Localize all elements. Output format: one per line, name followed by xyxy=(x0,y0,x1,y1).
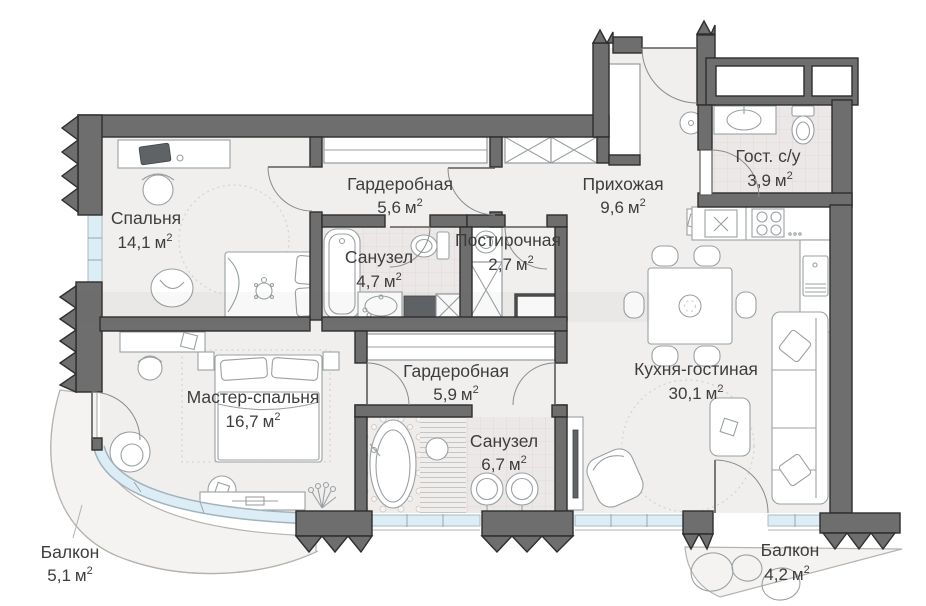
area-value: 3,9 xyxy=(747,171,771,190)
room-area: 6,7м2 xyxy=(481,454,526,474)
wardrobe2-rail xyxy=(367,334,555,360)
bedroom-desk xyxy=(118,140,230,168)
room-area: 9,6м2 xyxy=(600,197,645,217)
area-sup: 2 xyxy=(521,454,527,466)
area-value: 2,7 xyxy=(488,255,512,274)
area-sup: 2 xyxy=(473,384,479,396)
master-bed xyxy=(198,352,339,462)
wall-closet-stub xyxy=(609,155,640,165)
area-sup: 2 xyxy=(528,254,534,266)
bottom-window-2 xyxy=(575,515,683,526)
wall-bath1-north-b xyxy=(430,215,467,227)
area-sup: 2 xyxy=(787,170,793,182)
bathtub-2 xyxy=(370,420,416,508)
guest-wc-door-leaf xyxy=(700,150,712,195)
area-unit: м xyxy=(155,233,167,252)
wall-wardrobe1-right-a xyxy=(490,137,502,167)
wall-wardrobe2-east-a xyxy=(555,331,567,363)
floor-bathroom2-shower xyxy=(420,417,466,513)
wall-right-main xyxy=(830,205,852,513)
area-unit: м xyxy=(509,455,521,474)
area-sup: 2 xyxy=(804,564,810,576)
room-area: 5,6м2 xyxy=(377,197,422,217)
floor-plan: Спальня 14,1м2 Гардеробная 5,6м2 Прихожа… xyxy=(0,0,926,606)
wall-vestibule-left xyxy=(593,43,609,137)
guest-wc-toilet xyxy=(792,106,814,144)
hatch-entry-right xyxy=(697,21,715,34)
area-unit: м xyxy=(75,566,87,585)
room-name: Гост. с/у xyxy=(736,146,801,166)
wall-bottom-pillar-2 xyxy=(482,511,573,536)
area-value: 6,7 xyxy=(481,455,505,474)
wall-bath2-pillar xyxy=(552,405,567,417)
hatch-left-top xyxy=(62,116,78,212)
wall-balcony-post xyxy=(92,438,102,450)
floor-plan-page: Спальня 14,1м2 Гардеробная 5,6м2 Прихожа… xyxy=(0,0,926,606)
area-value: 30,1 xyxy=(669,384,702,403)
area-sup: 2 xyxy=(274,411,280,423)
room-name: Постирочная xyxy=(455,230,561,250)
wall-right-upper xyxy=(832,100,852,205)
area-value: 14,1 xyxy=(118,233,151,252)
wall-wardrobe2-west-a xyxy=(355,331,367,363)
wall-bath2-west xyxy=(355,417,367,513)
area-value: 5,6 xyxy=(377,198,401,217)
area-sup: 2 xyxy=(87,565,93,577)
room-area: 5,9м2 xyxy=(433,384,478,404)
area-value: 5,1 xyxy=(47,566,71,585)
shaft-duct-1 xyxy=(716,66,804,96)
room-area: 5,1м2 xyxy=(47,565,92,585)
hatch-bottom-4 xyxy=(823,533,895,549)
area-unit: м xyxy=(706,384,718,403)
entry-closet-rail xyxy=(609,64,640,155)
area-value: 4,7 xyxy=(356,272,380,291)
guest-wc-sink xyxy=(714,106,776,134)
wall-bedroom-right-a xyxy=(310,137,322,167)
area-unit: м xyxy=(792,565,804,584)
area-sup: 2 xyxy=(640,197,646,209)
bedroom-window xyxy=(88,215,102,282)
area-unit: м xyxy=(263,412,275,431)
room-name: Спальня xyxy=(111,208,181,228)
area-value: 5,9 xyxy=(433,385,457,404)
area-unit: м xyxy=(384,272,396,291)
area-sup: 2 xyxy=(417,197,423,209)
area-unit: м xyxy=(775,171,787,190)
room-name: Балкон xyxy=(41,542,100,562)
wall-guestwc-bottom xyxy=(698,193,852,207)
dining-table xyxy=(648,268,732,344)
wall-bottom-pillar-3 xyxy=(683,511,713,534)
area-value: 16,7 xyxy=(226,412,259,431)
room-area: 3,9м2 xyxy=(747,170,792,190)
watermark xyxy=(70,292,650,322)
area-sup: 2 xyxy=(717,383,723,395)
area-unit: м xyxy=(516,255,528,274)
room-name: Санузел xyxy=(345,247,413,267)
wall-entry-stub xyxy=(613,37,642,53)
living-tv-console xyxy=(567,417,583,510)
area-value: 4,2 xyxy=(764,565,788,584)
room-name: Гардеробная xyxy=(347,174,453,194)
room-name: Мастер-спальня xyxy=(187,387,320,407)
area-sup: 2 xyxy=(166,232,172,244)
wall-bath2-east xyxy=(555,417,567,513)
room-name: Прихожая xyxy=(582,174,663,194)
wall-left-top xyxy=(78,115,102,215)
area-value: 9,6 xyxy=(600,198,624,217)
room-area: 14,1м2 xyxy=(118,232,173,252)
room-area: 16,7м2 xyxy=(226,411,281,431)
hatch-entry-left xyxy=(593,30,613,43)
wall-top xyxy=(78,115,609,137)
wall-bottom-pillar-1 xyxy=(296,511,372,536)
area-unit: м xyxy=(628,198,640,217)
room-name: Балкон xyxy=(761,540,820,560)
bottom-window-1 xyxy=(372,515,480,526)
room-name: Кухня-гостиная xyxy=(634,359,758,379)
wall-bath1-north-a xyxy=(322,215,385,227)
hatch-bottom-2 xyxy=(482,536,573,552)
wall-right-foot xyxy=(820,513,900,533)
wall-laundry-north-a xyxy=(467,215,505,227)
shaft-duct-2 xyxy=(812,66,852,96)
wall-wardrobe2-south xyxy=(355,405,472,417)
wall-hall-stub xyxy=(597,137,609,163)
area-unit: м xyxy=(461,385,473,404)
room-area: 4,7м2 xyxy=(356,271,401,291)
wall-guestwc-left xyxy=(698,105,712,150)
area-sup: 2 xyxy=(396,271,402,283)
hatch-bottom-1 xyxy=(296,536,372,552)
living-sofa xyxy=(772,312,828,504)
room-area: 30,1м2 xyxy=(669,383,724,403)
area-unit: м xyxy=(405,198,417,217)
room-name: Санузел xyxy=(470,431,538,451)
room-name: Гардеробная xyxy=(403,361,509,381)
room-area: 4,2м2 xyxy=(764,564,809,584)
shower-stool xyxy=(426,438,448,460)
wardrobe1-rail xyxy=(324,137,487,163)
living-coffee-table xyxy=(710,398,750,456)
wall-laundry-north-b xyxy=(547,215,567,227)
hall-storage-xboxes xyxy=(505,137,597,163)
room-area: 2,7м2 xyxy=(488,254,533,274)
kitchen-counter xyxy=(692,207,830,240)
